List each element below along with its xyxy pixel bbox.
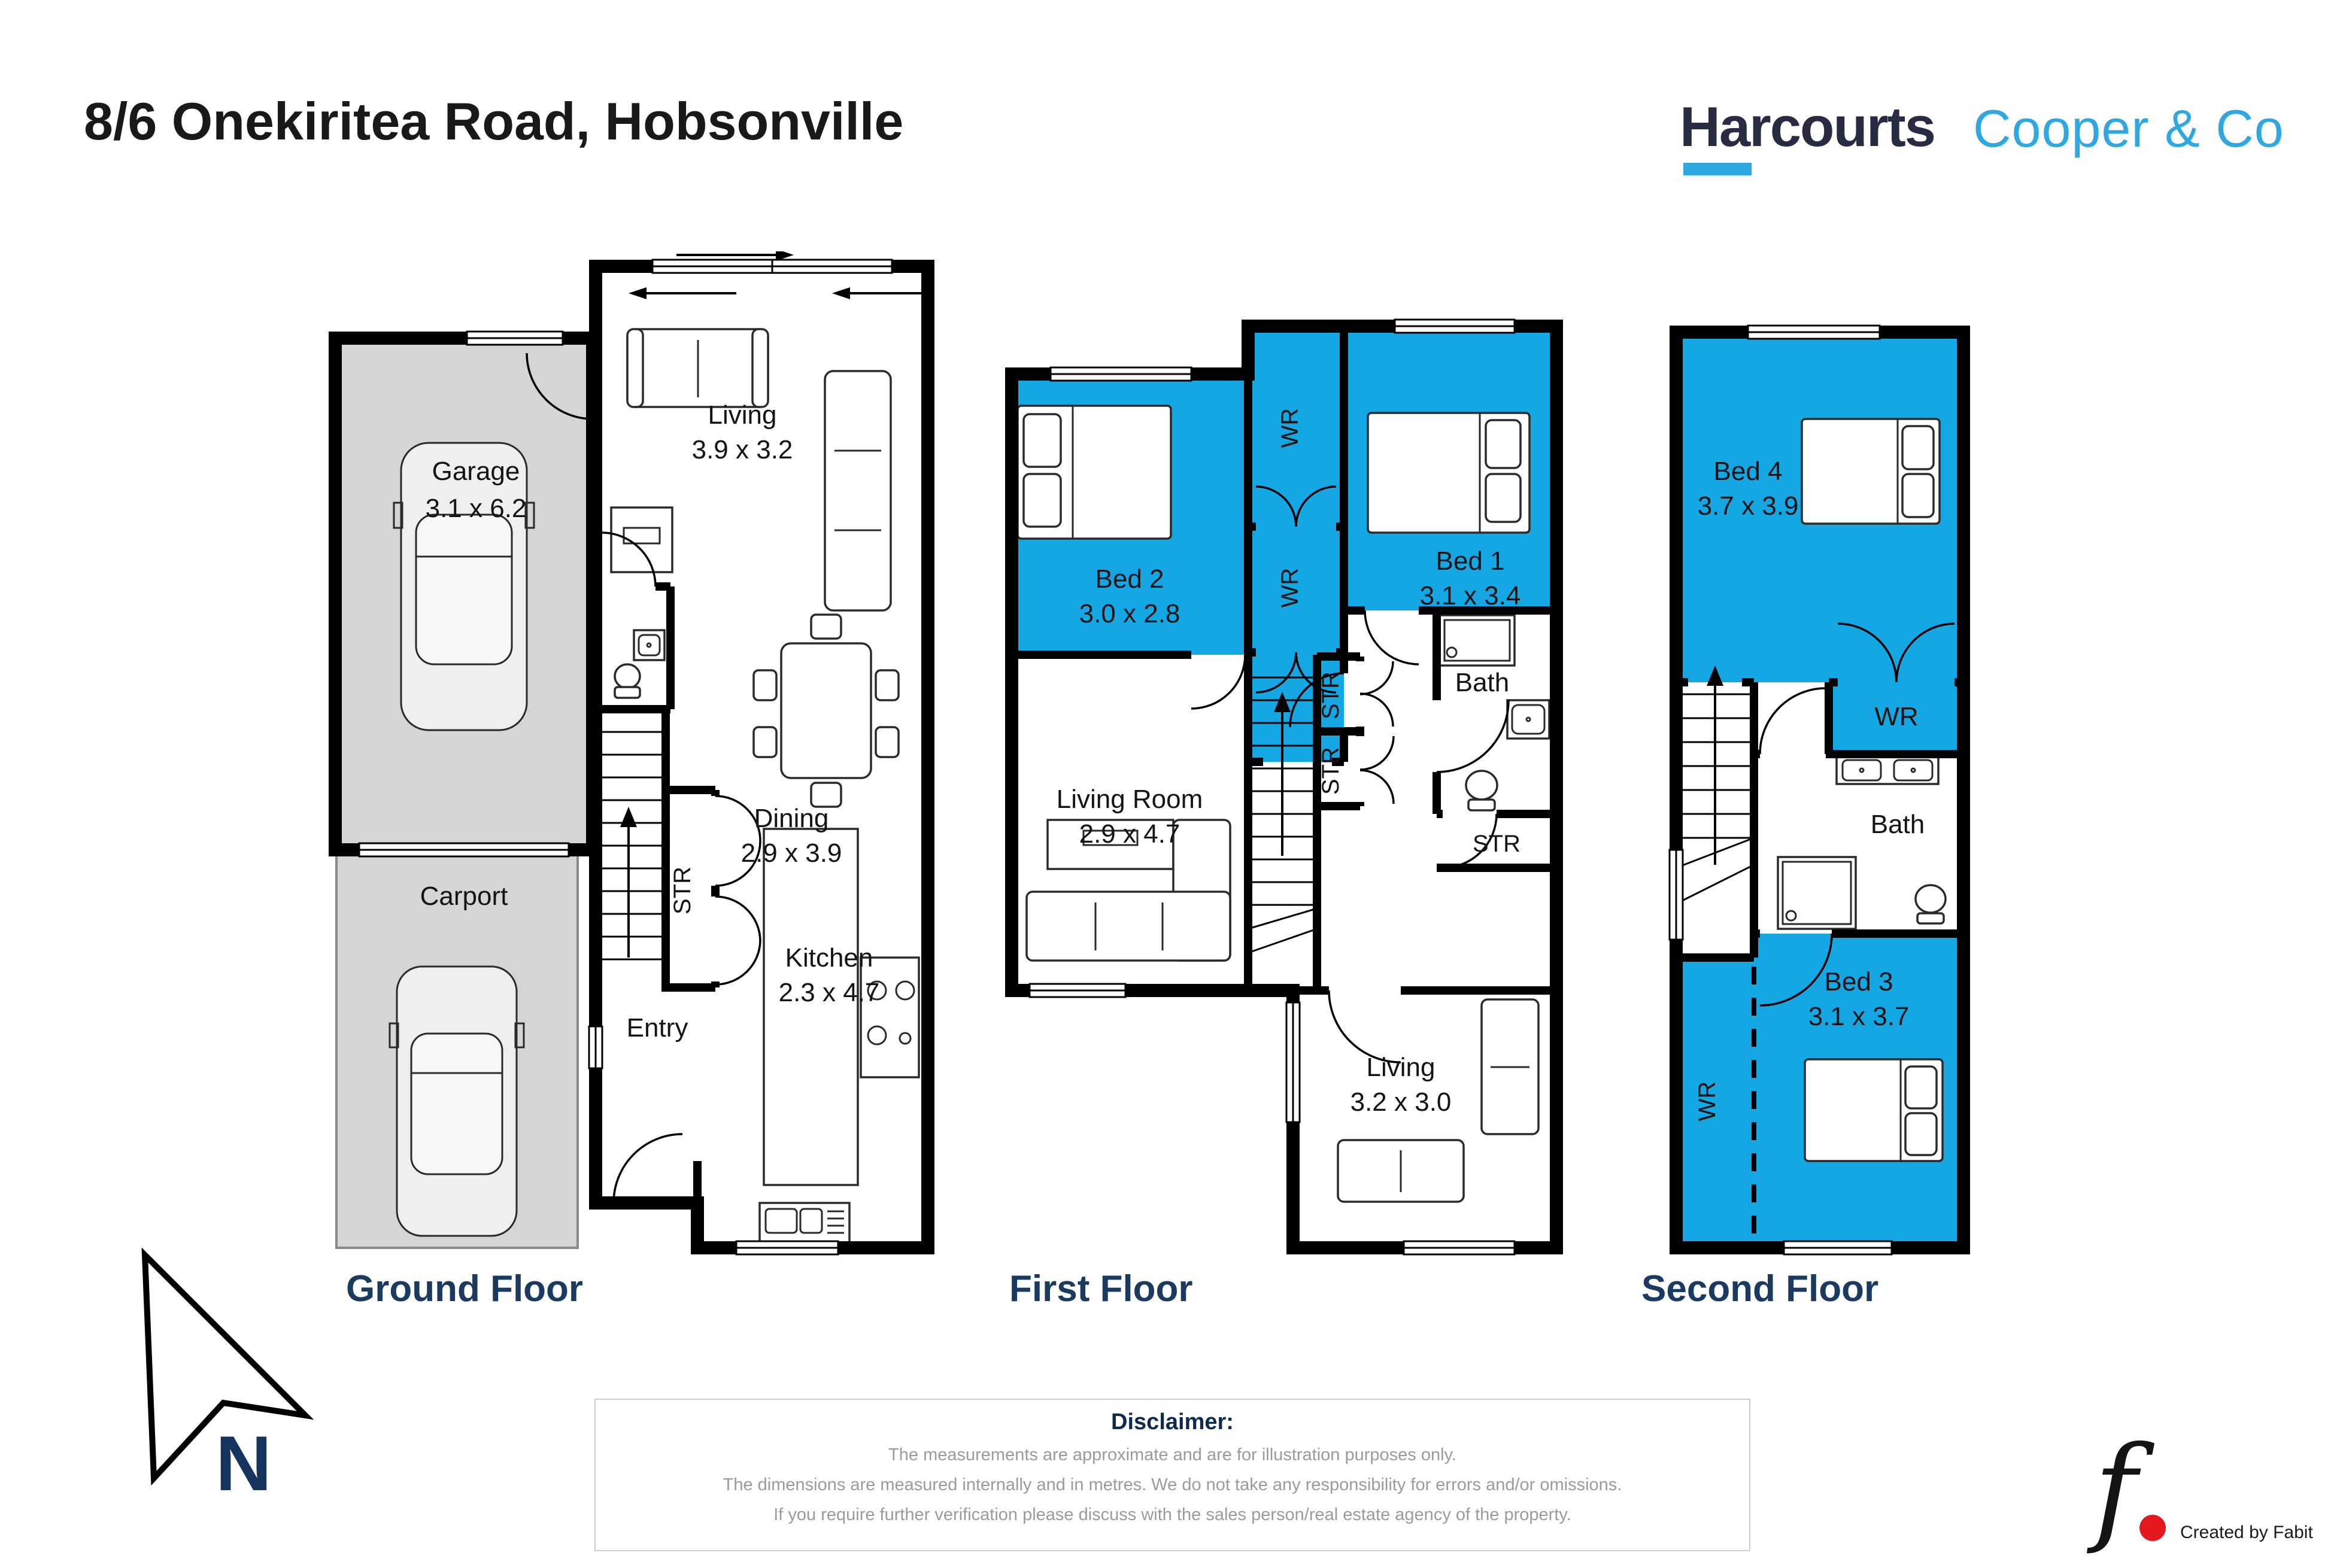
sofa-icon [627,329,768,407]
double-bed-icon [1018,406,1171,539]
fabit-logo-dot-icon [2139,1515,2166,1541]
room-dims: 3.1 x 3.7 [1808,1002,1910,1031]
brand-harcourts: Harcourts [1680,95,1935,159]
room-label: Bed 4 [1714,457,1783,486]
disclaimer-line: The dimensions are measured internally a… [596,1475,1749,1495]
window [1748,326,1880,339]
window [1030,984,1125,997]
room-label: Dining [754,804,829,833]
basin-icon [634,630,664,660]
page-title: 8/6 Onekiritea Road, Hobsonville [84,91,903,152]
window [1286,1002,1300,1122]
double-bed-icon [1805,1059,1943,1161]
shower-icon [1778,857,1856,929]
fabit-logo-monogram: f [2094,1430,2137,1547]
room-dims: 3.2 x 3.0 [1350,1087,1452,1117]
window [467,332,563,345]
room-label: Living [708,400,777,430]
room-label: STR [1473,831,1521,857]
window [1051,367,1191,381]
disclaimer-title: Disclaimer: [596,1409,1749,1435]
window [1784,1241,1892,1254]
room-label: WR [1874,702,1918,731]
car-icon [390,967,524,1236]
room-dims: 2.3 x 4.7 [779,978,880,1007]
room-dims: 3.1 x 6.2 [426,494,527,523]
first-floor-title: First Floor [1009,1268,1193,1310]
cooktop-icon [861,958,919,1077]
room-dims: 3.7 x 3.9 [1698,491,1799,521]
room-label: Living Room [1057,785,1203,814]
compass-label: N [216,1420,272,1507]
vanity-basin-icon [1837,756,1938,784]
room-label: Bath [1871,810,1925,839]
window [1404,1241,1515,1254]
disclaimer-line: If you require further verification plea… [596,1505,1749,1525]
room-label: Bed 3 [1825,967,1893,996]
room-label: Kitchen [785,943,873,973]
sofa-icon [1482,999,1538,1134]
ground-floor-title: Ground Floor [346,1268,583,1310]
window [1670,850,1683,940]
toilet-icon [615,664,640,698]
double-bed-icon [1368,413,1529,533]
window [359,843,569,856]
room-label: Bed 2 [1095,564,1164,594]
floorplan-page: 8/6 Onekiritea Road, Hobsonville Harcour… [0,0,2346,1568]
room-dims: 3.1 x 3.4 [1420,581,1521,610]
room-label: Carport [420,882,508,911]
room-dims: 2.9 x 4.7 [1079,819,1180,849]
sofa-icon [825,371,891,610]
room-label: Entry [627,1013,688,1043]
basin-icon [1507,700,1549,739]
window [652,260,892,273]
toilet-icon [1466,771,1497,810]
room-label: WR [1277,408,1303,448]
room-label: WR [1694,1081,1720,1122]
ground-floor-plan: Garage 3.1 x 6.2 Carport Living 3.9 x 3.… [269,251,976,1263]
first-floor-plan: Bed 2 3.0 x 2.8 WR WR Bed 1 3.1 x 3.4 Li… [994,317,1574,1263]
disclaimer-box: Disclaimer: The measurements are approxi… [594,1399,1750,1551]
second-floor-title: Second Floor [1641,1268,1878,1310]
tv-cabinet-icon [611,508,672,572]
sofa-icon [1338,1140,1464,1202]
room-label: Bed 1 [1436,546,1505,576]
brand-cooper-co: Cooper & Co [1973,98,2284,159]
room-dims: 3.9 x 3.2 [692,435,793,464]
room-label: WR [1277,568,1303,608]
room-label: STR [669,867,696,914]
car-icon [394,443,534,730]
room-label: Bath [1455,668,1510,697]
compass-north-arrow: N [132,1239,323,1568]
brand-underline-bar [1683,163,1752,175]
room-label: STR [1318,747,1344,795]
room-dims: 2.9 x 3.9 [741,838,842,868]
room-dims: 3.0 x 2.8 [1079,599,1180,628]
disclaimer-line: The measurements are approximate and are… [596,1445,1749,1465]
credit-label: Created by Fabit [2180,1523,2313,1543]
room-label: Living [1367,1053,1435,1082]
window [1395,320,1515,333]
toilet-icon [1916,885,1946,923]
room-label: Garage [432,457,520,486]
window [736,1241,838,1254]
room-label: STR [1318,671,1344,719]
double-bed-icon [1802,419,1940,524]
window [589,1026,602,1068]
shower-icon [1440,615,1515,666]
second-floor-plan: Bed 4 3.7 x 3.9 WR Bath Bed 3 3.1 x 3.7 … [1658,323,1993,1257]
